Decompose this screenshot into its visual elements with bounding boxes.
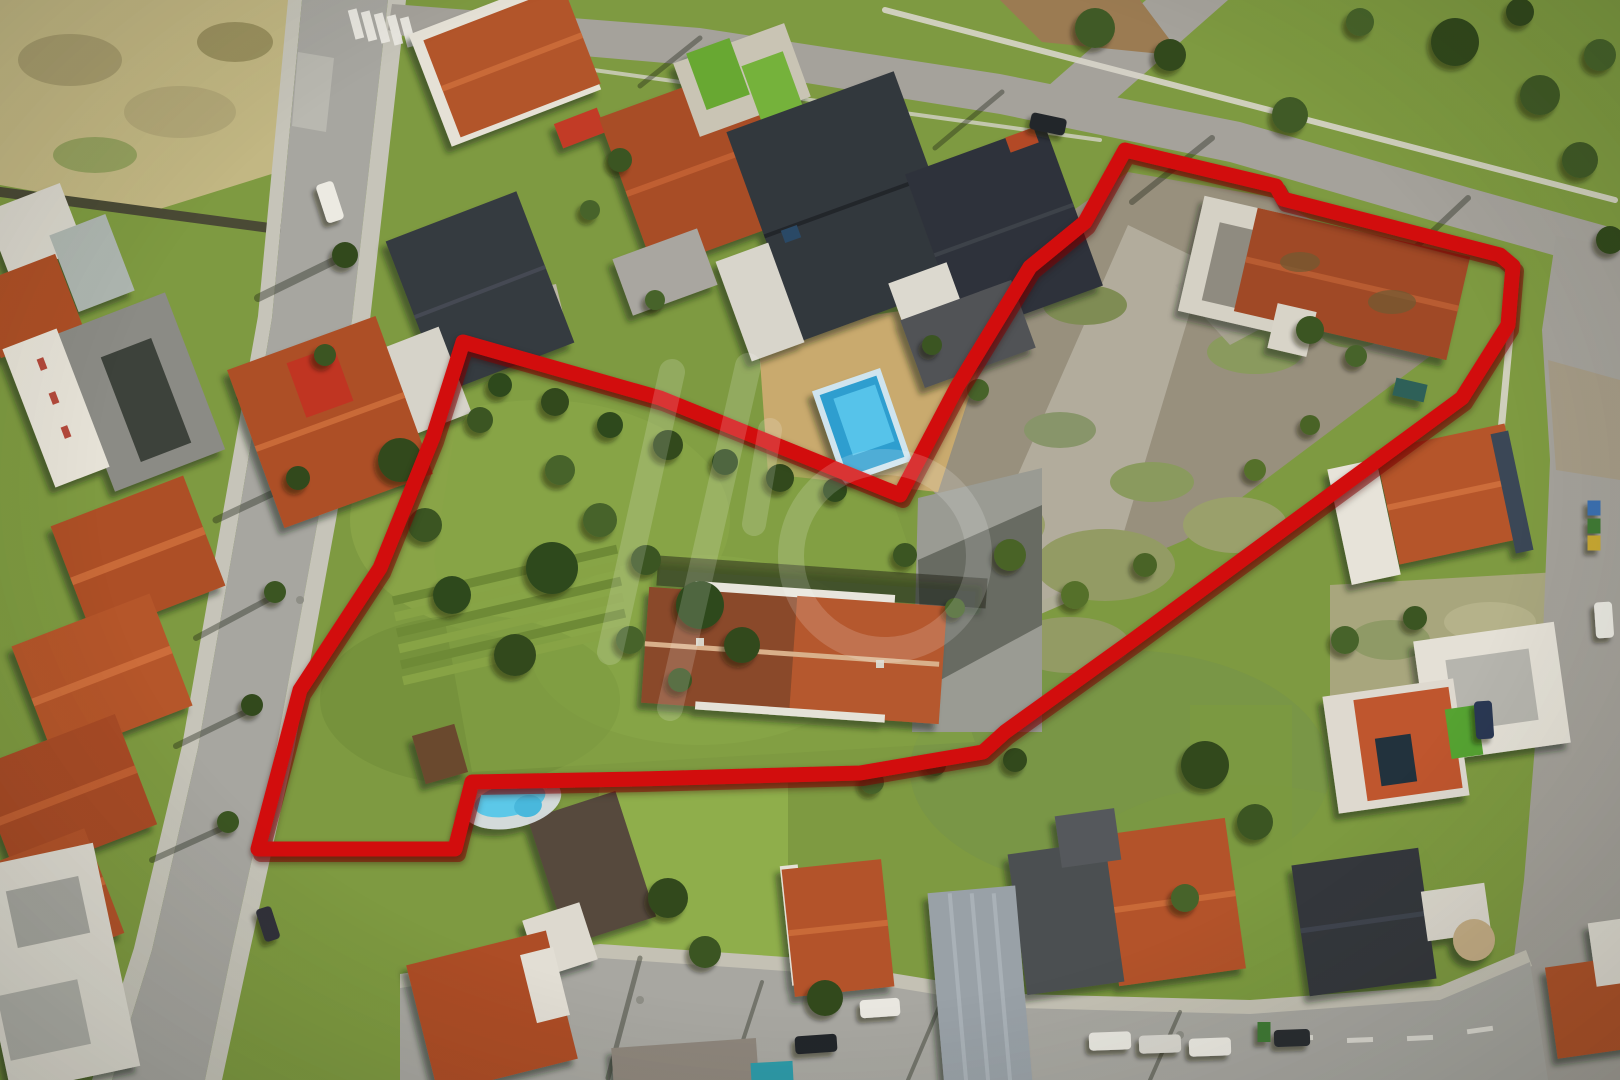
- field-blotch: [124, 86, 236, 138]
- tree: [494, 634, 536, 676]
- white-van: [1189, 1037, 1232, 1056]
- tree: [545, 455, 575, 485]
- street-tree: [241, 694, 263, 716]
- scrub-bush: [1244, 459, 1266, 481]
- tree: [689, 936, 721, 968]
- tree: [467, 407, 493, 433]
- street-tree: [286, 466, 310, 490]
- tree: [1272, 97, 1308, 133]
- hedge-bush: [541, 388, 569, 416]
- solar-panels: [1375, 734, 1417, 787]
- tree: [583, 503, 617, 537]
- dark-car: [1274, 1029, 1311, 1047]
- tree: [1296, 316, 1324, 344]
- street-tree: [264, 581, 286, 603]
- aerial-photo: [0, 0, 1620, 1080]
- tree: [608, 148, 632, 172]
- tree: [1181, 741, 1229, 789]
- small-pool: [751, 1061, 794, 1080]
- tree: [1520, 75, 1560, 115]
- white-car: [859, 998, 900, 1019]
- dirt-blotch: [1024, 412, 1096, 448]
- right-dirt-lane: [1548, 360, 1620, 480]
- scrub-bush: [994, 539, 1026, 571]
- tree: [1154, 39, 1186, 71]
- yellow-bin: [1588, 536, 1601, 551]
- watermark-stroke: [754, 430, 770, 524]
- scrub-bush: [1133, 553, 1157, 577]
- lane-dash: [1347, 1037, 1373, 1043]
- tree: [1331, 626, 1359, 654]
- white-car: [1594, 601, 1614, 638]
- manhole: [636, 996, 644, 1004]
- tree: [1403, 606, 1427, 630]
- scrub-bush: [1300, 415, 1320, 435]
- dirt-blotch: [1110, 462, 1194, 502]
- tree: [1584, 39, 1616, 71]
- roof-moss: [1368, 290, 1416, 314]
- tree: [724, 627, 760, 663]
- shingle-roof: [1055, 808, 1122, 868]
- manhole: [296, 596, 304, 604]
- green-bin: [1588, 519, 1601, 534]
- field-blotch: [18, 34, 122, 86]
- tree: [526, 542, 578, 594]
- green-bin: [1258, 1022, 1271, 1042]
- tree: [1345, 345, 1367, 367]
- dark-car: [794, 1034, 837, 1055]
- tree: [807, 980, 843, 1016]
- blue-bin: [1588, 501, 1601, 516]
- tree: [1171, 884, 1199, 912]
- tree: [1562, 142, 1598, 178]
- tree: [433, 576, 471, 614]
- white-van: [1089, 1031, 1132, 1050]
- street-tree: [332, 242, 358, 268]
- tree: [580, 200, 600, 220]
- field-blotch: [53, 137, 137, 173]
- tree: [1346, 8, 1374, 36]
- tree: [648, 878, 688, 918]
- garden-bush: [922, 335, 942, 355]
- tree: [893, 543, 917, 567]
- round-patio: [1453, 919, 1495, 961]
- white-van: [1139, 1034, 1182, 1053]
- roof-moss: [1280, 252, 1320, 272]
- hedge-bush: [488, 373, 512, 397]
- street-tree: [314, 344, 336, 366]
- tree: [1003, 748, 1027, 772]
- street-tree: [217, 811, 239, 833]
- tree: [1075, 8, 1115, 48]
- field-blotch: [197, 22, 273, 62]
- aerial-photo-stage: Aerial drone photo of a residential neig…: [0, 0, 1620, 1080]
- tree: [1431, 18, 1479, 66]
- scrub-bush: [1061, 581, 1089, 609]
- tree: [1237, 804, 1273, 840]
- garden-bush: [645, 290, 665, 310]
- hedge-bush: [597, 412, 623, 438]
- blue-car: [1474, 700, 1495, 739]
